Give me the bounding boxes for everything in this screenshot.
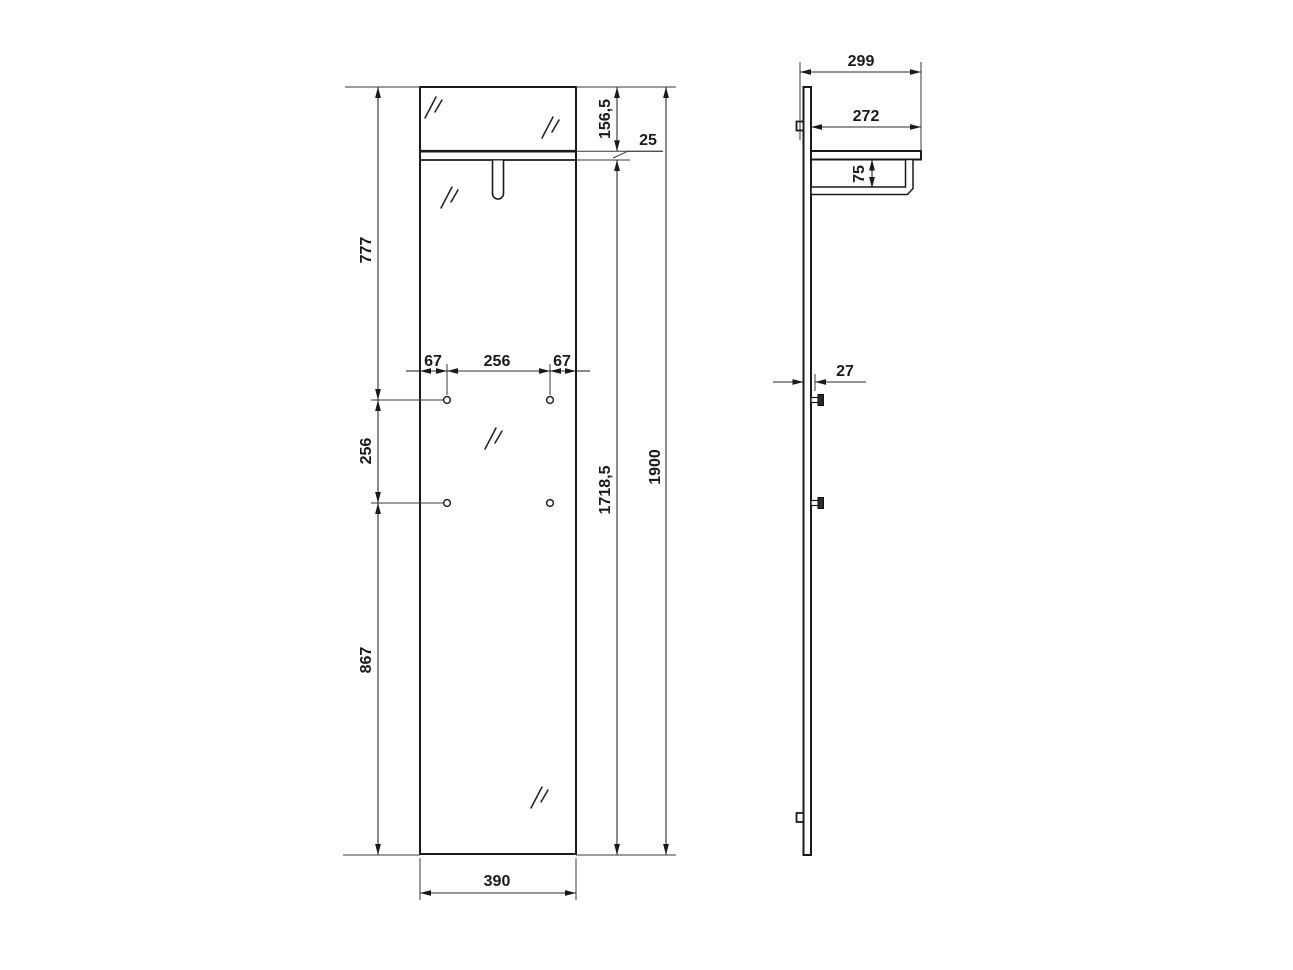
peg-head [818,395,824,406]
dim-label-below-shelf: 1718,5 [597,465,614,514]
dim-label-hole-spacing: 256 [484,353,511,370]
shelf-side-profile [811,151,921,160]
dim-label-top-to-shelf: 156,5 [597,99,614,139]
dim-label-shelf-thickness: 25 [639,132,657,149]
drill-hole [547,397,554,404]
leader-line-shelf-thickness [613,151,663,158]
peg-shaft [811,398,819,403]
wall-bracket-bottom [797,813,804,822]
dim-label-hole-inset-left: 67 [424,353,442,370]
peg-shaft [811,501,819,506]
dim-label-panel-thickness: 27 [836,363,854,380]
side-view [797,87,922,855]
mounting-peg-lower [811,498,824,509]
dim-label-rail-offset: 75 [851,165,868,183]
dim-label-hole-row-gap: 256 [358,438,375,465]
technical-drawing: 777 256 867 67 256 67 156,5 25 1718,5 19… [0,0,1293,970]
dim-label-hole-inset-right: 67 [553,353,571,370]
dim-label-total-depth: 299 [848,53,875,70]
peg-head [818,498,824,509]
side-view-dimensions: 299 272 75 27 [773,53,921,391]
drill-hole [444,500,451,507]
dim-label-panel-width: 390 [484,873,511,890]
drill-hole [547,500,554,507]
dim-label-top-section: 777 [358,237,375,264]
side-panel-outline [804,87,812,855]
dim-label-shelf-depth: 272 [853,108,880,125]
drawing-canvas: 777 256 867 67 256 67 156,5 25 1718,5 19… [0,0,1293,970]
mounting-peg-upper [811,395,824,406]
coat-hook [493,161,504,200]
drill-hole [444,397,451,404]
front-view [420,87,576,854]
dim-label-bottom-section: 867 [358,647,375,674]
dim-label-total-height: 1900 [647,449,664,485]
